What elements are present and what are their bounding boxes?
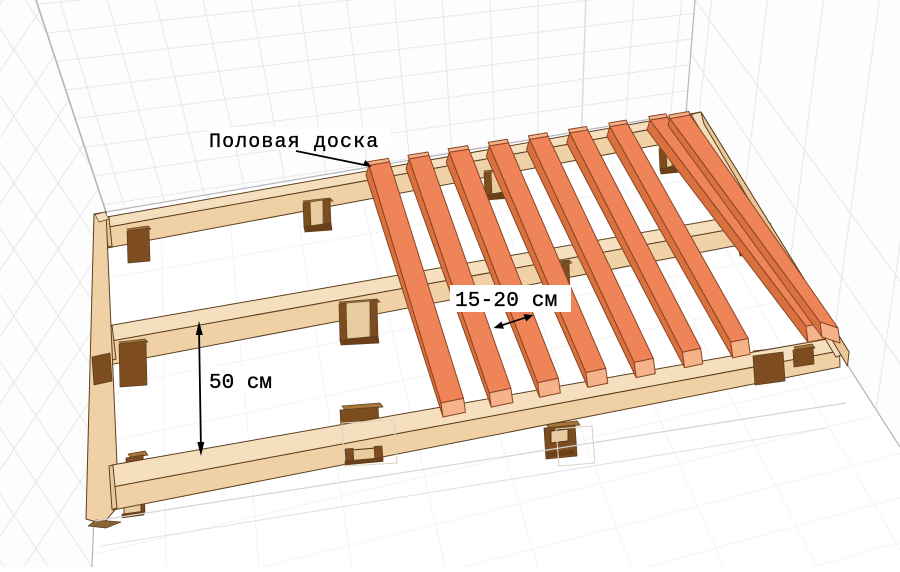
svg-text:Половая доска: Половая доска bbox=[209, 131, 379, 154]
svg-text:15-20 см: 15-20 см bbox=[455, 290, 557, 313]
svg-text:50 см: 50 см bbox=[209, 372, 272, 395]
